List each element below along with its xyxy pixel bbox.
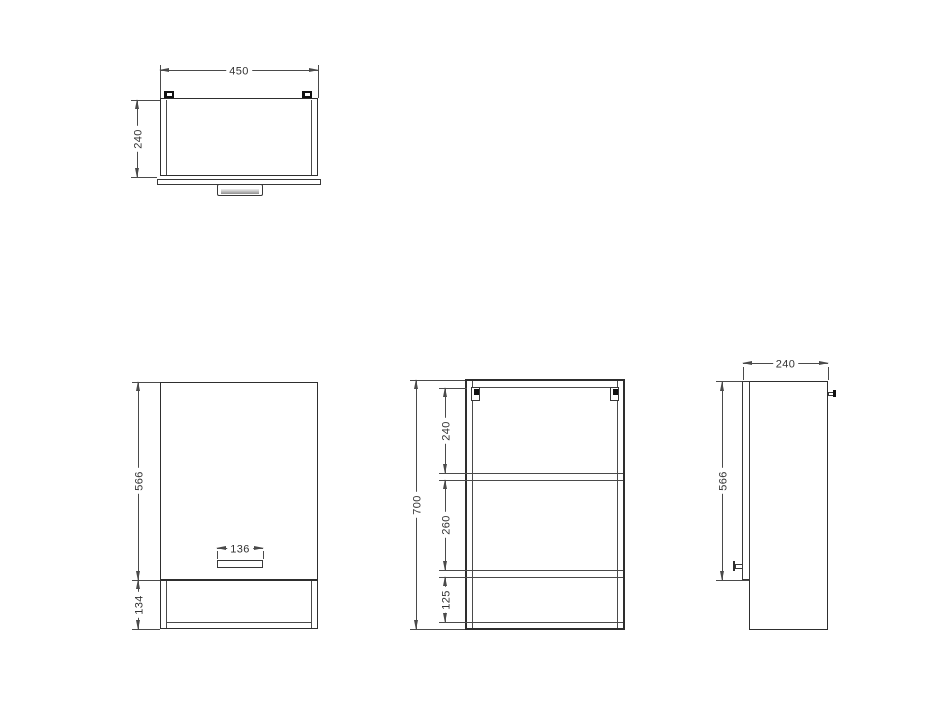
handle-front bbox=[217, 560, 263, 568]
arrowhead-icon bbox=[135, 168, 139, 178]
arrowhead-icon bbox=[136, 381, 140, 391]
door-side-profile bbox=[742, 381, 750, 580]
shelf-line bbox=[467, 570, 623, 571]
dimension-label: 240 bbox=[132, 126, 145, 152]
dimension-top-compartment: 240 bbox=[445, 388, 446, 473]
shelf-line bbox=[467, 577, 623, 578]
handle-plan bbox=[217, 184, 263, 196]
arrowhead-icon bbox=[720, 571, 724, 581]
dimension-door-height: 566 bbox=[138, 382, 139, 580]
arrowhead-icon bbox=[720, 381, 724, 391]
handle-recess bbox=[221, 189, 259, 194]
extension-line bbox=[263, 551, 264, 559]
arrowhead-icon bbox=[443, 576, 447, 586]
arrowhead-icon bbox=[159, 68, 169, 72]
hinge-plate-icon bbox=[164, 91, 174, 98]
extension-line bbox=[828, 367, 829, 380]
side-panel-line bbox=[311, 100, 312, 175]
dimension-label: 566 bbox=[133, 468, 146, 494]
side-panel-line bbox=[166, 100, 167, 175]
arrowhead-icon bbox=[443, 387, 447, 397]
arrowhead-icon bbox=[443, 561, 447, 571]
hanging-bracket-icon bbox=[610, 387, 619, 401]
dimension-top-depth: 240 bbox=[137, 100, 138, 177]
dimension-middle-compartment: 260 bbox=[445, 480, 446, 570]
bracket-pin bbox=[613, 389, 618, 395]
arrowhead-icon bbox=[136, 620, 140, 630]
arrowhead-icon bbox=[254, 546, 264, 550]
arrowhead-icon bbox=[742, 361, 752, 365]
arrowhead-icon bbox=[135, 99, 139, 109]
carcass-outline bbox=[465, 379, 625, 630]
technical-drawing-canvas: 450 240 bbox=[0, 0, 949, 712]
arrowhead-icon bbox=[216, 546, 226, 550]
arrowhead-icon bbox=[414, 620, 418, 630]
dimension-label: 125 bbox=[440, 587, 453, 613]
cabinet-side-outline bbox=[749, 381, 828, 630]
dimension-top-width: 450 bbox=[160, 70, 318, 71]
extension-line bbox=[743, 367, 744, 380]
arrowhead-icon bbox=[309, 68, 319, 72]
bottom-panel-line bbox=[166, 622, 312, 623]
handle-side-profile bbox=[735, 564, 743, 569]
arrowhead-icon bbox=[443, 479, 447, 489]
dimension-side-depth: 240 bbox=[743, 363, 828, 364]
bottom-panel-line bbox=[467, 622, 623, 623]
extension-line bbox=[410, 380, 465, 381]
dimension-label: 240 bbox=[773, 358, 799, 371]
dimension-label: 566 bbox=[717, 468, 730, 494]
dimension-label: 240 bbox=[440, 418, 453, 444]
dimension-label: 450 bbox=[226, 65, 252, 78]
top-panel-line bbox=[473, 387, 617, 388]
dimension-label: 700 bbox=[411, 492, 424, 518]
shelf-line bbox=[467, 473, 623, 474]
dimension-label: 260 bbox=[440, 512, 453, 538]
cabinet-plan-outline bbox=[160, 98, 318, 176]
side-panel-line bbox=[617, 381, 618, 628]
dimension-label: 136 bbox=[227, 543, 253, 556]
extension-line bbox=[410, 629, 465, 630]
shelf-line bbox=[467, 480, 623, 481]
dimension-total-height: 700 bbox=[416, 380, 417, 629]
arrowhead-icon bbox=[443, 464, 447, 474]
arrowhead-icon bbox=[819, 361, 829, 365]
wall-bracket-tip bbox=[833, 390, 836, 397]
extension-line bbox=[217, 551, 218, 559]
dimension-side-door-height: 566 bbox=[722, 382, 723, 580]
dimension-bottom-compartment: 125 bbox=[445, 577, 446, 622]
dimension-base-height: 134 bbox=[138, 580, 139, 629]
arrowhead-icon bbox=[443, 613, 447, 623]
hanging-bracket-icon bbox=[471, 387, 480, 401]
hinge-slot bbox=[305, 93, 310, 96]
arrowhead-icon bbox=[136, 579, 140, 589]
hinge-plate-icon bbox=[302, 91, 312, 98]
bracket-pin bbox=[474, 389, 479, 395]
dimension-handle-width: 136 bbox=[217, 548, 263, 549]
side-panel-line bbox=[472, 381, 473, 628]
dimension-label: 134 bbox=[133, 592, 146, 618]
hinge-slot bbox=[167, 93, 172, 96]
arrowhead-icon bbox=[414, 379, 418, 389]
